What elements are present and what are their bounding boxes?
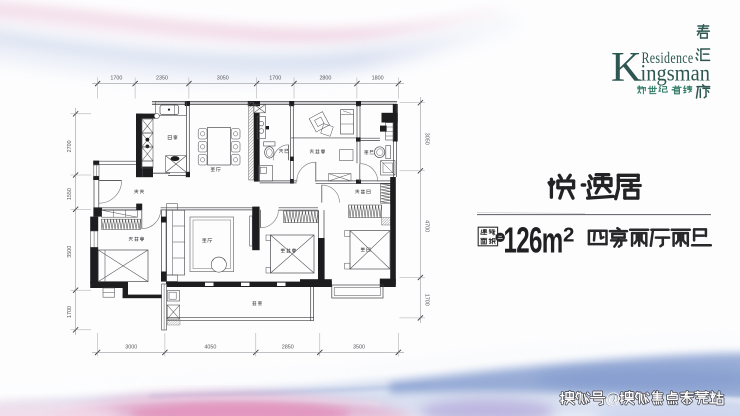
svg-text:126m: 126m xyxy=(504,220,563,261)
svg-text:1700: 1700 xyxy=(110,76,122,82)
svg-text:1800: 1800 xyxy=(372,76,384,82)
svg-text:4700: 4700 xyxy=(424,220,430,232)
svg-text:3050: 3050 xyxy=(217,76,229,82)
svg-text:1700: 1700 xyxy=(67,306,73,318)
svg-text:2850: 2850 xyxy=(282,345,294,351)
svg-text:3500: 3500 xyxy=(67,246,73,258)
svg-text:4050: 4050 xyxy=(204,345,216,351)
svg-text:@: @ xyxy=(605,391,621,408)
svg-text:2700: 2700 xyxy=(67,140,73,152)
svg-text:1550: 1550 xyxy=(67,188,73,200)
svg-text:1700: 1700 xyxy=(269,76,281,82)
svg-text:3000: 3000 xyxy=(125,345,137,351)
svg-text:K: K xyxy=(611,44,642,91)
svg-text:2800: 2800 xyxy=(319,76,331,82)
svg-text:1700: 1700 xyxy=(424,294,430,306)
svg-text:2: 2 xyxy=(563,224,574,247)
svg-text:3500: 3500 xyxy=(353,345,365,351)
svg-text:ingsman: ingsman xyxy=(641,61,711,87)
svg-text:3050: 3050 xyxy=(424,133,430,145)
svg-text:2350: 2350 xyxy=(156,76,168,82)
